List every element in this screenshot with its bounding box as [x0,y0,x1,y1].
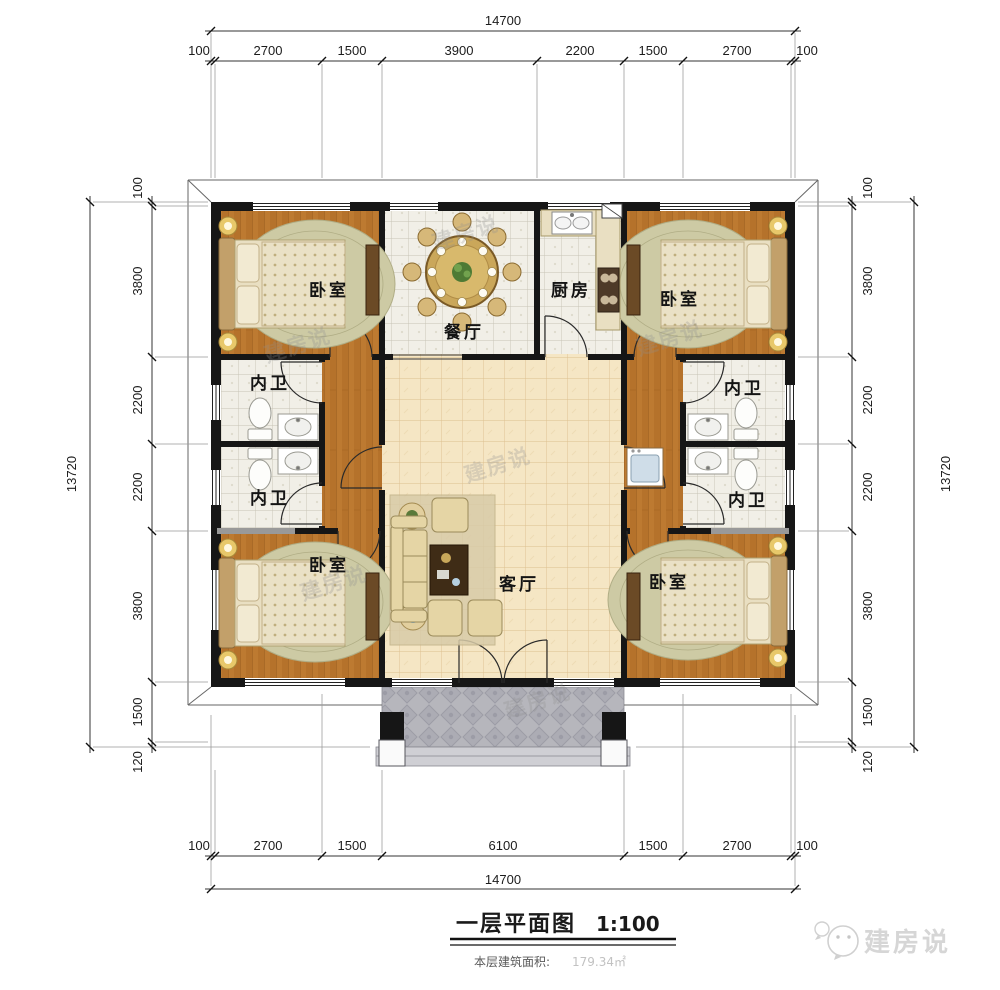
dim-right-total: 13720 [938,456,953,492]
label-bath-bottom-right: 内卫 [728,490,768,511]
dim-top-seg: 3900 [445,43,474,58]
dim-right-seg: 1500 [860,698,875,727]
window-dining [390,202,438,211]
dim-top-seg: 100 [796,43,818,58]
dim-top-seg: 1500 [338,43,367,58]
label-bedroom-bottom-right: 卧室 [649,572,689,593]
dim-left-total: 13720 [64,456,79,492]
porch-floor [382,687,624,747]
window-bath-top-right [785,385,795,420]
window-bath-bottom-right [785,470,795,505]
floor-corridor-right [624,354,683,534]
dim-bottom-seg: 100 [796,838,818,853]
drawing-scale: 1:100 [596,912,660,936]
dim-right-seg: 100 [860,177,875,199]
window-living-left [392,678,452,687]
dim-right-seg: 2200 [860,473,875,502]
window-bath-top-left [211,385,221,420]
window-bedroom-bottom-left [245,678,345,687]
porch-column-right [602,712,626,740]
label-dining: 餐厅 [444,322,484,343]
dim-bottom-seg: 100 [188,838,210,853]
dim-right-seg: 120 [860,751,875,773]
dim-right-seg: 3800 [860,592,875,621]
dim-bottom-seg: 2700 [723,838,752,853]
dim-right-seg: 2200 [860,386,875,415]
dim-left-seg: 120 [130,751,145,773]
window-bedroom-bottom-right [660,678,760,687]
dim-bottom-seg: 1500 [338,838,367,853]
label-kitchen: 厨房 [551,280,591,301]
dimensions-top: 14700 100 2700 1500 3900 2200 1500 2700 … [188,13,818,178]
porch-column-base-right [601,740,627,766]
label-bedroom-top-left: 卧室 [309,280,349,301]
label-bath-bottom-left: 内卫 [250,488,290,509]
dim-top-seg: 100 [188,43,210,58]
dim-top-seg: 1500 [639,43,668,58]
floor-corridor-left [322,354,382,534]
window-bedroom-top-right [660,202,750,211]
dim-left-seg: 2200 [130,386,145,415]
logo-text: 建房说 [864,928,951,958]
window-bedroom-top-left [253,202,350,211]
dim-top-seg: 2700 [723,43,752,58]
floor-plan-canvas: 卧室 餐厅 厨房 卧室 内卫 内卫 内卫 内卫 客厅 卧室 卧室 建房说 建房说… [0,0,1000,986]
dim-bottom-seg: 1500 [639,838,668,853]
dim-left-seg: 1500 [130,698,145,727]
dim-bottom-seg: 2700 [254,838,283,853]
porch-column-left [380,712,404,740]
dim-left-seg: 100 [130,177,145,199]
dim-top-seg: 2700 [254,43,283,58]
label-living: 客厅 [498,574,539,595]
dim-left-seg: 3800 [130,267,145,296]
area-note-label: 本层建筑面积: [474,954,550,969]
area-note-value: 179.34㎡ [572,955,626,969]
label-bath-top-left: 内卫 [250,373,290,394]
drawing-title: 一层平面图 [456,912,576,937]
dim-bottom-seg: 6100 [489,838,518,853]
dim-right-seg: 3800 [860,267,875,296]
brand-logo: 建房说 [815,922,951,960]
porch [376,687,630,766]
porch-column-base-left [379,740,405,766]
dim-left-seg: 3800 [130,592,145,621]
label-bedroom-top-right: 卧室 [660,289,700,310]
washing-machine [627,448,663,486]
speech-bubble-icon [815,922,858,960]
living-room-set [390,495,502,645]
dim-top-total: 14700 [485,13,521,28]
porch-steps [376,747,630,766]
label-bath-top-right: 内卫 [724,378,764,399]
window-bath-bottom-left [211,470,221,505]
dim-left-seg: 2200 [130,473,145,502]
floor-plan-page: 卧室 餐厅 厨房 卧室 内卫 内卫 内卫 内卫 客厅 卧室 卧室 建房说 建房说… [0,0,1000,986]
dim-bottom-total: 14700 [485,872,521,887]
dim-top-seg: 2200 [566,43,595,58]
title-block: 一层平面图 1:100 本层建筑面积: 179.34㎡ [450,912,676,969]
